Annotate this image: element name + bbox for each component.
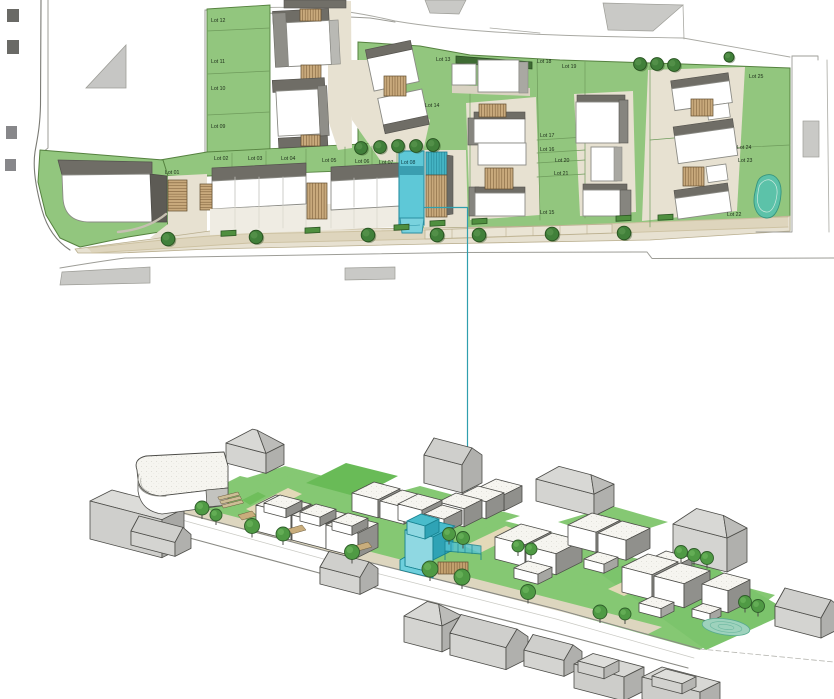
svg-text:Lot 14: Lot 14 (425, 103, 440, 109)
svg-text:Lot 05: Lot 05 (322, 158, 337, 164)
svg-text:Lot 02: Lot 02 (214, 156, 229, 162)
svg-text:Lot 22: Lot 22 (727, 212, 742, 218)
svg-text:Lot 25: Lot 25 (749, 74, 764, 80)
svg-text:Lot 10: Lot 10 (211, 86, 226, 92)
svg-text:Lot 18: Lot 18 (537, 59, 552, 65)
svg-text:Lot 19: Lot 19 (562, 64, 577, 70)
svg-text:Lot 15: Lot 15 (540, 210, 555, 216)
svg-text:Lot 12: Lot 12 (211, 18, 226, 24)
svg-text:Lot 03: Lot 03 (248, 156, 263, 162)
svg-text:Lot 21: Lot 21 (554, 171, 569, 177)
svg-text:Lot 09: Lot 09 (211, 124, 226, 130)
svg-text:Lot 11: Lot 11 (211, 59, 225, 65)
svg-text:Lot 23: Lot 23 (738, 158, 753, 164)
svg-text:Lot 16: Lot 16 (540, 147, 555, 153)
svg-text:Lot 04: Lot 04 (281, 156, 296, 162)
svg-text:Lot 06: Lot 06 (355, 159, 370, 165)
svg-text:Lot 08: Lot 08 (401, 160, 416, 166)
svg-text:Lot 20: Lot 20 (555, 158, 570, 164)
svg-text:Lot 17: Lot 17 (540, 133, 555, 139)
svg-text:Lot 13: Lot 13 (436, 57, 451, 63)
svg-text:Lot 01: Lot 01 (165, 170, 180, 176)
svg-text:Lot 24: Lot 24 (737, 145, 752, 151)
svg-text:Lot 07: Lot 07 (379, 160, 394, 166)
